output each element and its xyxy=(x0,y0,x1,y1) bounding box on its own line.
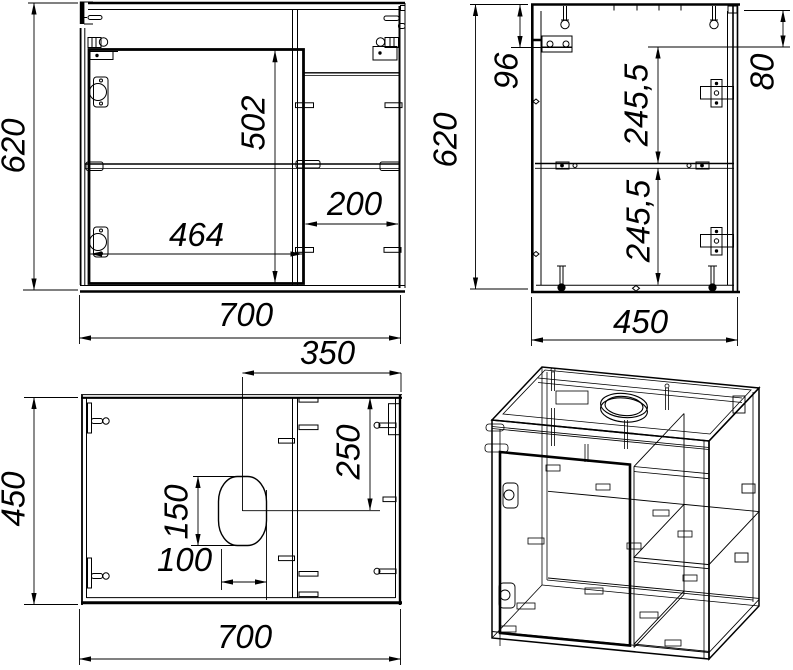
svg-text:620: 620 xyxy=(0,118,32,174)
svg-text:700: 700 xyxy=(217,618,273,655)
svg-text:80: 80 xyxy=(744,53,781,90)
svg-text:250: 250 xyxy=(330,424,367,481)
svg-text:200: 200 xyxy=(326,185,383,222)
svg-text:464: 464 xyxy=(169,216,224,253)
svg-text:245,5: 245,5 xyxy=(618,63,655,147)
svg-text:620: 620 xyxy=(427,112,464,168)
svg-text:96: 96 xyxy=(488,52,525,89)
svg-text:450: 450 xyxy=(613,303,669,340)
svg-text:700: 700 xyxy=(218,296,274,333)
svg-text:450: 450 xyxy=(0,471,32,527)
svg-text:100: 100 xyxy=(157,541,213,578)
svg-text:350: 350 xyxy=(300,334,356,371)
svg-text:502: 502 xyxy=(235,95,272,150)
svg-text:150: 150 xyxy=(158,484,195,540)
svg-text:245,5: 245,5 xyxy=(620,179,657,263)
